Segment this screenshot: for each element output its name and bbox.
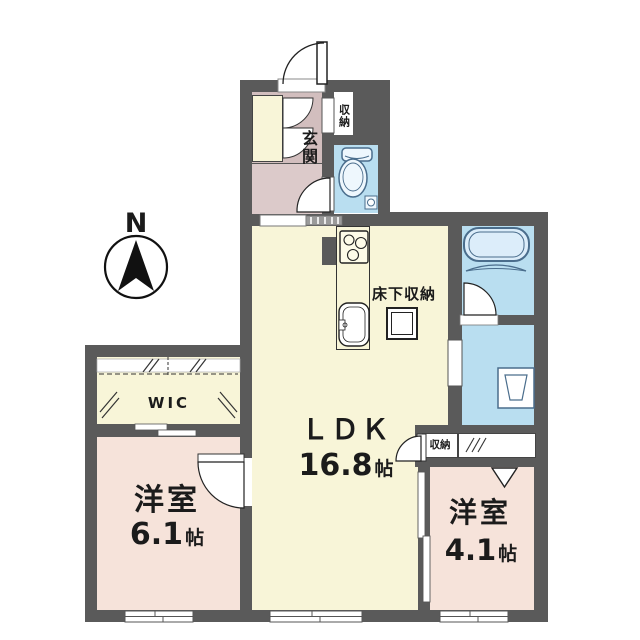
washing-machine-icon [498,368,534,408]
front-door-leaf [317,42,327,84]
shoe-cabinet-door-arc-top [283,98,313,128]
entrance-storage-door [322,98,334,133]
entrance-storage-label: 収納 [337,102,351,130]
floorplan: N 玄関 収納 ＬＤＫ 16.8帖 床下収納 WIC 洋室 6.1帖 洋室 4.… [0,0,640,640]
stove-icon [340,231,368,263]
washroom-door-band [448,340,462,386]
bedroom-left-label: 洋室 [107,484,227,518]
bathroom-door-band [460,315,498,325]
bedroom-right-size-value: 4.1 [445,536,496,565]
hall-ldk-step-grate [306,216,342,225]
bedroom-left-size: 6.1帖 [107,520,227,554]
compass-north-label: N [118,208,154,238]
bedroom-right-label: 洋室 [420,497,540,529]
lineart-overlay [0,0,640,640]
toilet-icon [339,148,377,209]
hall-ldk-door-band [260,215,306,226]
bathtub-icon [464,228,529,271]
ldk-size-value: 16.8 [298,451,372,481]
bedroom-right-storage-label: 収納 [423,438,457,453]
bedroom-right-size: 4.1帖 [421,536,541,569]
window-bedroom-right [440,611,508,622]
underfloor-storage-label: 床下収納 [358,286,450,303]
ldk-label: ＬＤＫ [276,414,416,446]
ldk-size-unit: 帖 [375,460,394,479]
bedroom-right-size-unit: 帖 [498,545,517,564]
entrance-label: 玄関 [298,126,318,170]
wic-label: WIC [134,394,204,412]
closet-direction-triangle [492,468,517,487]
sink-icon [339,303,369,346]
window-bedroom-left [125,611,193,622]
underfloor-storage-icon [387,308,417,339]
window-ldk [270,611,362,622]
bedroom-left-size-unit: 帖 [185,529,204,548]
toilet-door-swing-arc [297,178,330,212]
compass-icon [105,236,167,298]
bedroom-left-size-value: 6.1 [130,520,183,550]
bathroom-door-swing-arc [464,283,496,315]
closet-folding-door-marks [466,438,486,452]
wic-sliding-door [135,424,196,436]
ldk-size: 16.8帖 [276,451,416,485]
